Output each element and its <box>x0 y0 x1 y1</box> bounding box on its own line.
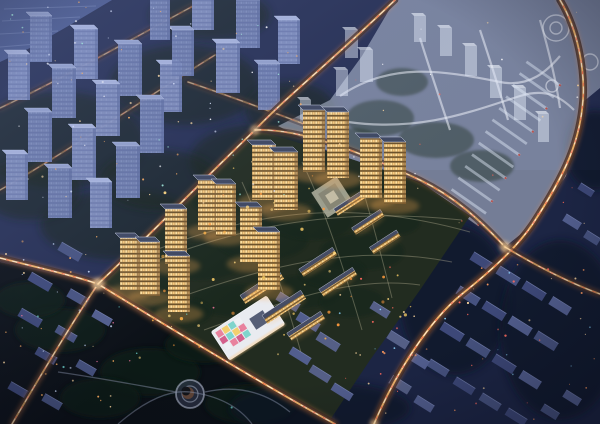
architectural-aerial-rendering <box>0 0 600 424</box>
vignette-overlay <box>0 0 600 424</box>
scene-svg <box>0 0 600 424</box>
